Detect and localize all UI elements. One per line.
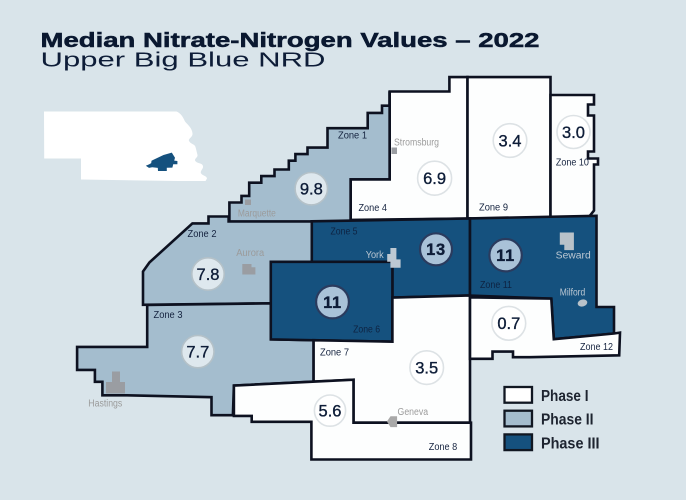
svg-text:Zone 5: Zone 5 bbox=[331, 227, 358, 238]
svg-text:Stromsburg: Stromsburg bbox=[394, 138, 439, 149]
svg-text:3.4: 3.4 bbox=[499, 132, 522, 150]
svg-text:Seward: Seward bbox=[556, 250, 591, 261]
svg-text:7.7: 7.7 bbox=[186, 343, 209, 361]
svg-text:Zone 2: Zone 2 bbox=[188, 229, 217, 240]
svg-text:13: 13 bbox=[426, 241, 446, 259]
svg-text:Zone 10: Zone 10 bbox=[556, 157, 589, 168]
svg-text:Zone 3: Zone 3 bbox=[154, 310, 183, 321]
svg-text:7.8: 7.8 bbox=[197, 266, 220, 284]
svg-text:Zone 4: Zone 4 bbox=[358, 203, 387, 214]
svg-text:Phase I: Phase I bbox=[541, 388, 589, 405]
svg-text:3.0: 3.0 bbox=[562, 124, 585, 142]
svg-text:0.7: 0.7 bbox=[497, 315, 520, 333]
svg-text:Zone 8: Zone 8 bbox=[429, 442, 458, 453]
svg-text:9.8: 9.8 bbox=[300, 181, 323, 199]
svg-text:Zone 9: Zone 9 bbox=[479, 203, 508, 214]
svg-text:Zone 1: Zone 1 bbox=[338, 130, 367, 141]
svg-text:5.6: 5.6 bbox=[319, 402, 342, 420]
svg-text:Zone 6: Zone 6 bbox=[353, 324, 380, 335]
svg-text:Geneva: Geneva bbox=[398, 407, 429, 418]
svg-text:11: 11 bbox=[496, 247, 515, 265]
svg-text:Zone 12: Zone 12 bbox=[580, 342, 613, 353]
svg-text:3.5: 3.5 bbox=[415, 359, 438, 377]
svg-text:Phase II: Phase II bbox=[541, 412, 594, 429]
svg-text:York: York bbox=[366, 250, 384, 261]
svg-text:6.9: 6.9 bbox=[423, 170, 446, 188]
svg-text:Hastings: Hastings bbox=[88, 399, 122, 410]
svg-text:Phase III: Phase III bbox=[541, 435, 600, 452]
svg-text:Zone 11: Zone 11 bbox=[480, 280, 512, 291]
svg-text:Upper Big Blue NRD: Upper Big Blue NRD bbox=[41, 50, 326, 72]
svg-text:Milford: Milford bbox=[560, 287, 586, 298]
svg-text:Aurora: Aurora bbox=[236, 248, 265, 259]
svg-text:11: 11 bbox=[323, 294, 342, 312]
svg-text:Marquette: Marquette bbox=[238, 209, 276, 220]
svg-text:Zone 7: Zone 7 bbox=[320, 348, 349, 359]
